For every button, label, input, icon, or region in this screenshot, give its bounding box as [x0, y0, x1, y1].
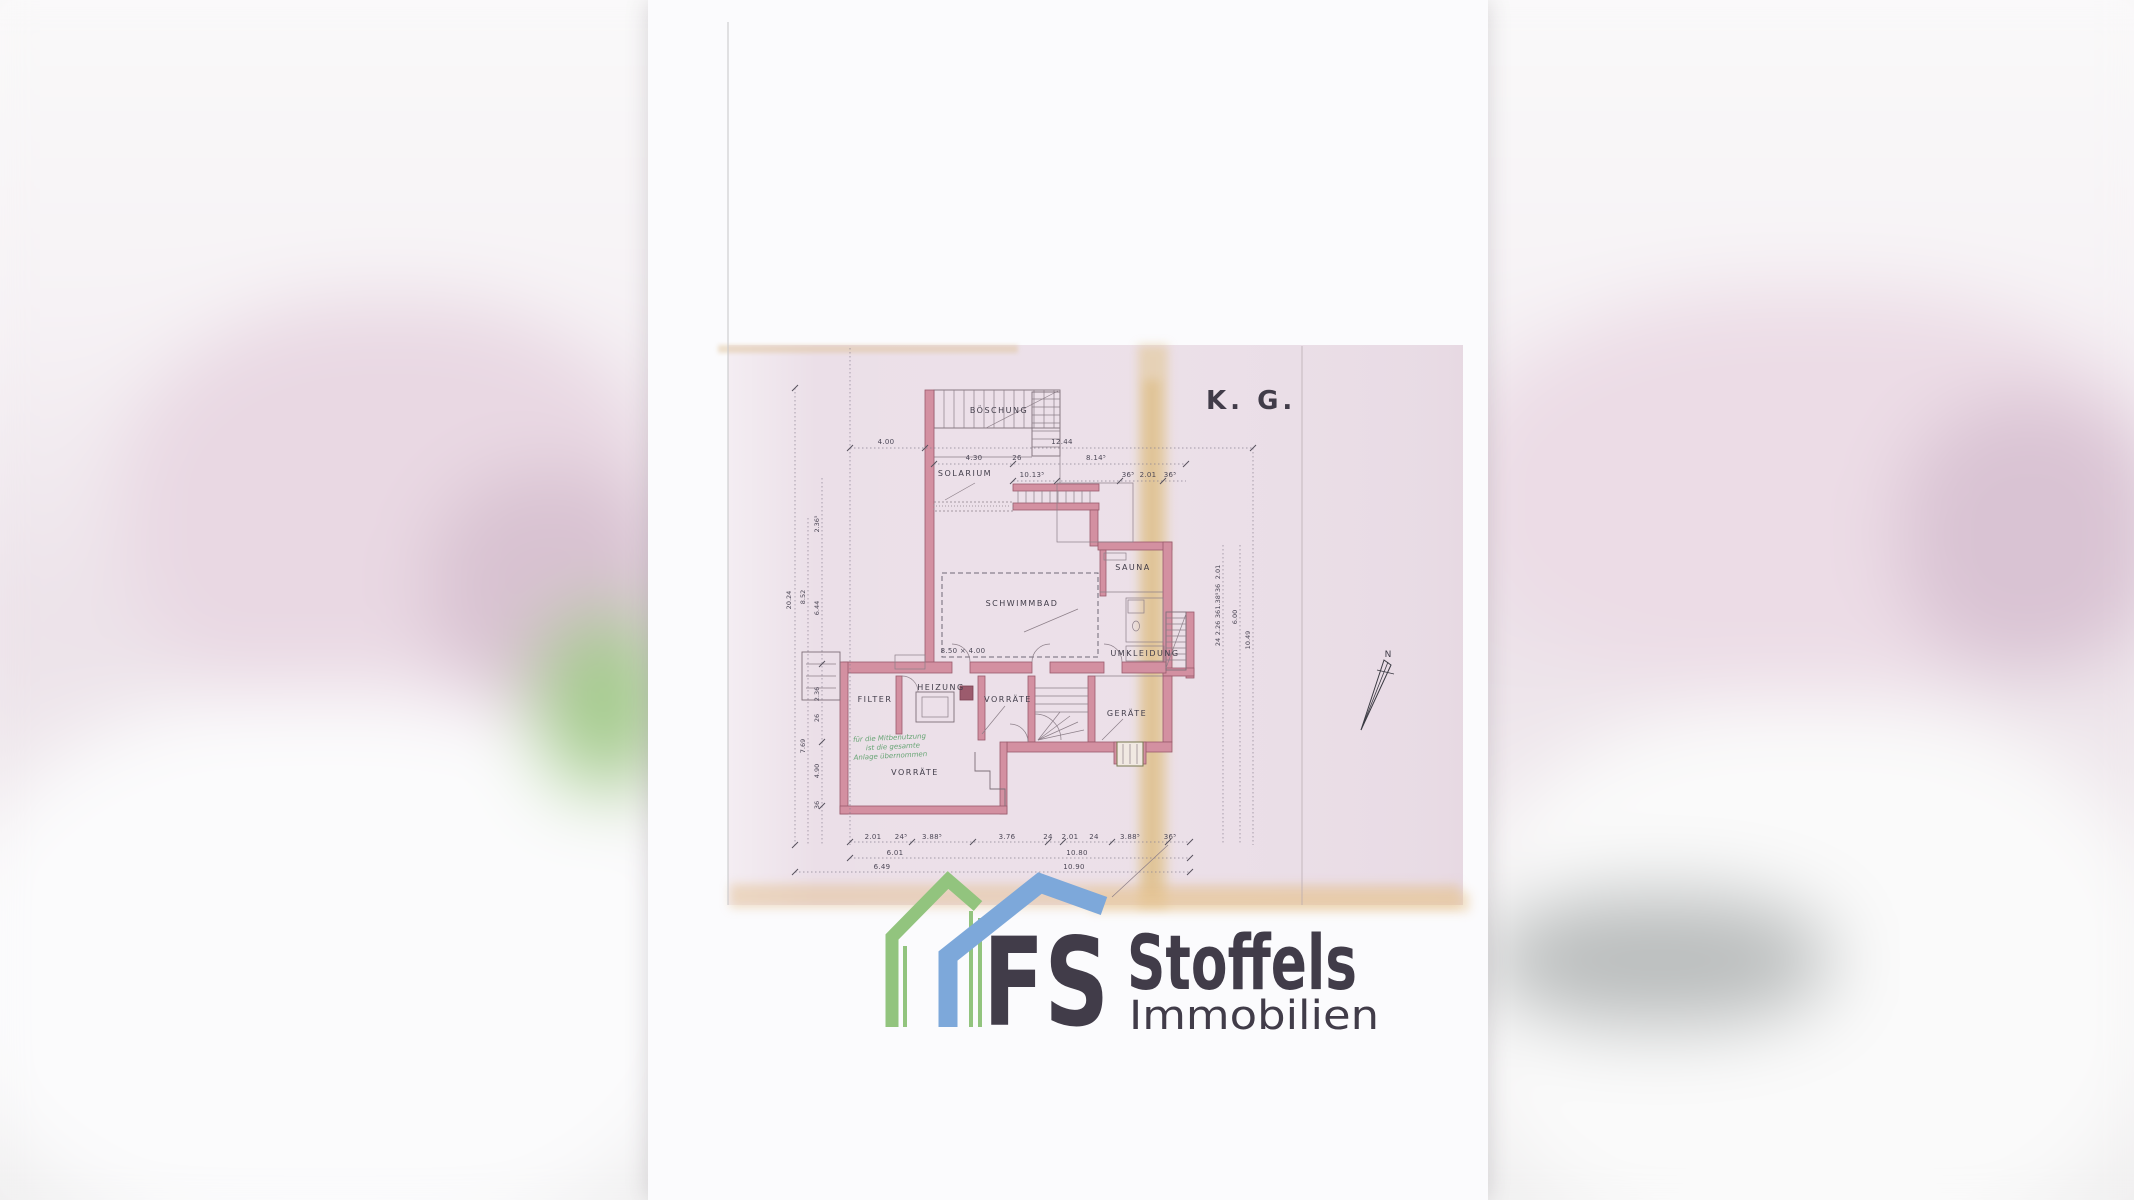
dim-bottom1-5: 24 [1043, 833, 1053, 841]
dim-right-mid: 6.00 [1231, 610, 1239, 624]
dim-row3-3: 2.01 [1140, 471, 1157, 479]
dim-left-inner-6: 36 [813, 801, 821, 809]
dim-bottom3-1: 6.49 [874, 863, 891, 871]
room-label-sauna: SAUNA [1115, 563, 1151, 572]
dim-right-inner-6: 24 [1214, 638, 1222, 646]
entrance-bay [1117, 742, 1143, 766]
dim-top-2: 12.44 [1051, 438, 1073, 446]
dim-bottom1-2: 24⁵ [895, 833, 908, 841]
screenshot: BÖSCHUNG SOLARIUM SAUNA SCHWIMMBAD 8.50 … [0, 0, 2134, 1200]
dim-row2-3: 8.14⁵ [1086, 454, 1106, 462]
logo-initials: FS [983, 912, 1109, 1054]
dim-right-inner-4: 36 [1214, 610, 1222, 618]
room-label-umkleidung: UMKLEIDUNG [1110, 649, 1179, 658]
room-label-boeschung: BÖSCHUNG [970, 405, 1028, 415]
dim-row3-1: 10.13⁵ [1020, 471, 1045, 479]
room-label-solarium: SOLARIUM [938, 469, 992, 478]
dim-bottom1-8: 3.88⁵ [1120, 833, 1140, 841]
dim-bottom1-4: 3.76 [999, 833, 1016, 841]
logo-subtitle: Immobilien [1129, 993, 1379, 1039]
floor-label: K. G. [1206, 386, 1296, 416]
dim-row3-4: 36⁵ [1164, 471, 1177, 479]
dim-top-1: 4.00 [878, 438, 895, 446]
dim-left-inner-4: 26 [813, 714, 821, 722]
dim-bottom1-6: 2.01 [1062, 833, 1079, 841]
dim-left-inner-3: 2.36 [813, 687, 821, 701]
dim-right-inner-3: 1.38⁵ [1214, 592, 1222, 609]
dim-bottom1-7: 24 [1089, 833, 1099, 841]
floorplan-scan: BÖSCHUNG SOLARIUM SAUNA SCHWIMMBAD 8.50 … [0, 0, 2134, 1200]
dim-bottom1-3: 3.88⁵ [922, 833, 942, 841]
scan-band [718, 22, 1470, 912]
dim-right-total: 10.49 [1244, 631, 1252, 650]
dim-left-total: 20.24 [785, 591, 793, 610]
dim-left-inner-1: 2.36⁵ [813, 515, 821, 532]
room-label-filter: FILTER [858, 695, 893, 704]
dim-row2-1: 4.30 [966, 454, 983, 462]
pool-size-label: 8.50 × 4.00 [941, 647, 986, 655]
room-label-vorraete-unten: VORRÄTE [891, 767, 939, 777]
dim-row3-2: 36⁵ [1122, 471, 1135, 479]
dim-left-inner-2: 6.44 [813, 601, 821, 615]
room-label-geraete: GERÄTE [1107, 708, 1147, 718]
room-label-schwimmbad: SCHWIMMBAD [986, 599, 1059, 608]
dim-left-2: 7.69 [799, 739, 807, 753]
dim-row2-2: 26 [1012, 454, 1022, 462]
dim-left-inner-5: 4.90 [813, 764, 821, 778]
room-label-vorraete: VORRÄTE [984, 694, 1032, 704]
north-label: N [1385, 650, 1392, 660]
dim-right-inner-1: 2.01 [1214, 565, 1222, 579]
dim-bottom1-9: 36⁵ [1164, 833, 1177, 841]
dim-bottom3-2: 10.90 [1063, 863, 1085, 871]
dim-right-inner-2: 36 [1214, 584, 1222, 592]
room-label-heizung: HEIZUNG [917, 683, 964, 692]
dim-bottom2-1: 6.01 [887, 849, 904, 857]
dim-bottom1-1: 2.01 [865, 833, 882, 841]
dim-left-1: 8.52 [799, 590, 807, 604]
dim-bottom2-2: 10.80 [1066, 849, 1088, 857]
dim-right-inner-5: 2.26 [1214, 621, 1222, 635]
